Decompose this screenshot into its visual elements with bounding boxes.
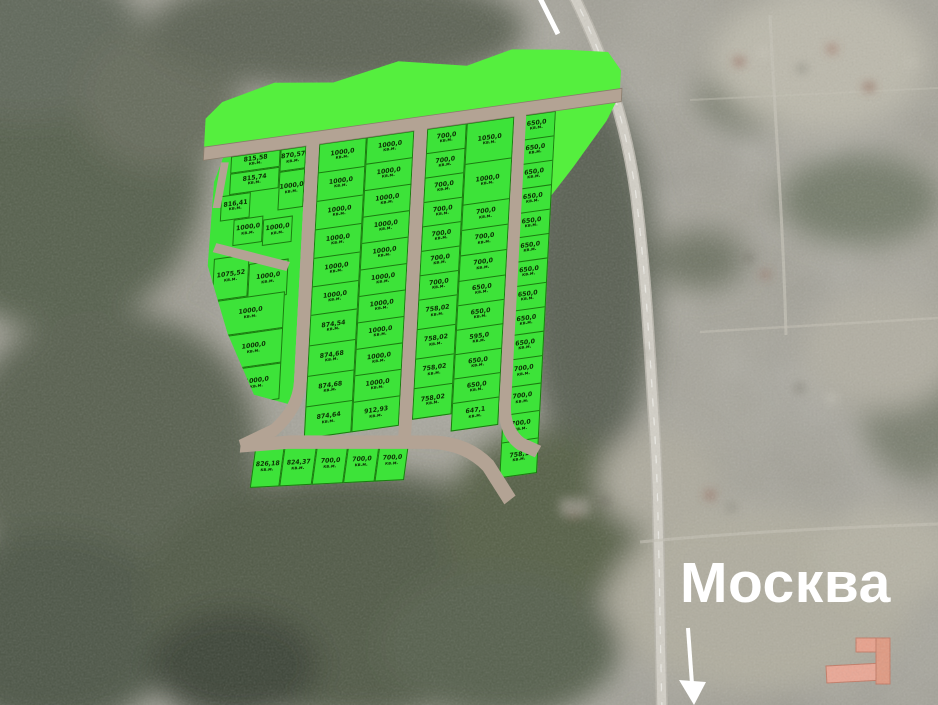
top-edge-white-line bbox=[539, 0, 558, 34]
city-label: Москва bbox=[680, 550, 891, 616]
satellite-map: 815,58кв.м.870,57кв.м.815,74кв.м.1000,0к… bbox=[0, 0, 938, 705]
moscow-arrow-down-icon bbox=[679, 628, 706, 705]
